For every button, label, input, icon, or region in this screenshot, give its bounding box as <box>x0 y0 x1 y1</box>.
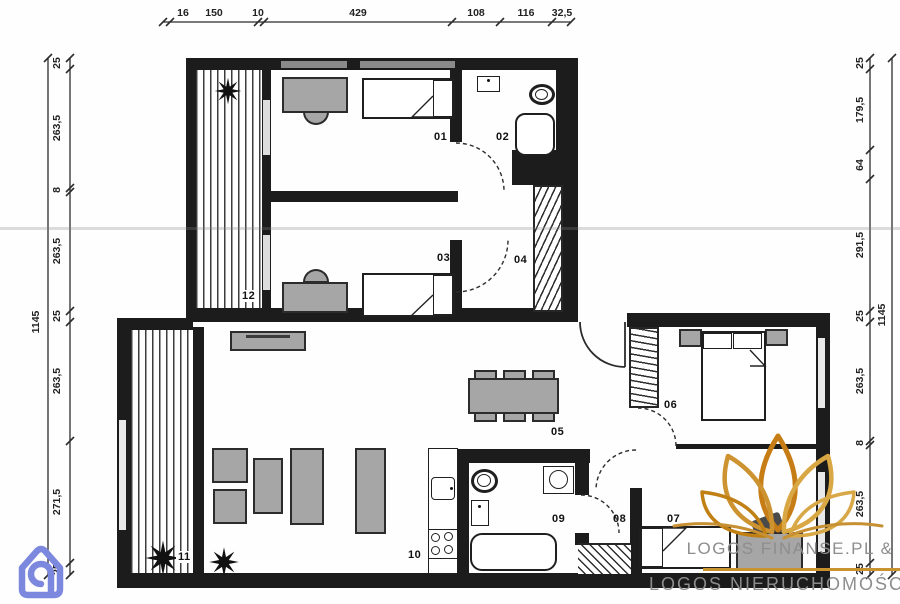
wall-room01-room03 <box>262 191 458 202</box>
dim-left-total: 1145 <box>30 300 42 344</box>
armchair-b <box>213 489 247 524</box>
shower-room02 <box>515 113 555 156</box>
dining-chair-5 <box>503 412 526 422</box>
floor-plan-page: 01 02 03 04 05 06 07 08 09 10 11 12 16 1… <box>0 0 900 604</box>
dim-right-7: 263,5 <box>854 482 866 526</box>
dim-right-4: 25 <box>854 294 866 338</box>
wall-hall04-right <box>562 185 578 312</box>
sofa <box>290 448 324 525</box>
sideboard <box>355 448 386 534</box>
dim-left-4: 25 <box>51 294 63 338</box>
room-label-09: 09 <box>552 513 565 525</box>
balcony-11-floor <box>131 330 193 573</box>
toilet-room02-bowl <box>535 89 548 100</box>
bathtub <box>470 533 557 571</box>
window-room01b <box>360 61 455 68</box>
kitchen-sink-tap <box>450 487 453 490</box>
dim-top-325: 32,5 <box>540 7 584 19</box>
nightstand-right <box>765 329 788 346</box>
room-label-07: 07 <box>667 513 680 525</box>
dim-left-2: 8 <box>51 168 63 212</box>
pillow-room06-b <box>733 333 762 349</box>
chair-room03 <box>303 269 329 283</box>
burner-4 <box>444 545 453 554</box>
dim-right-total: 1145 <box>876 293 888 337</box>
logo-underline <box>703 568 900 571</box>
room-label-06: 06 <box>664 399 677 411</box>
window-room01 <box>281 61 347 68</box>
tv-sideboard <box>230 331 306 351</box>
room-label-08: 08 <box>613 513 626 525</box>
room-label-04: 04 <box>514 254 527 266</box>
dim-right-1: 179,5 <box>854 88 866 132</box>
wall-bath-right-up <box>575 449 589 495</box>
room-label-03: 03 <box>437 252 450 264</box>
wall-room02-right <box>556 58 578 154</box>
dining-table <box>468 378 559 414</box>
sink-room09 <box>471 500 489 526</box>
dining-chair-2 <box>503 370 526 380</box>
window-room06 <box>818 338 825 408</box>
dim-left-5: 263,5 <box>51 359 63 403</box>
dim-left-6: 271,5 <box>51 480 63 524</box>
wall-upper-left <box>186 58 196 310</box>
sink-room09-tap <box>478 505 481 508</box>
dim-top-429: 429 <box>336 7 380 19</box>
dining-chair-1 <box>474 370 497 380</box>
burner-2 <box>444 532 453 541</box>
dim-left-7: 25 <box>51 547 63 591</box>
scan-artifact-line <box>0 227 900 230</box>
wall-room06-room07 <box>676 444 816 449</box>
tv-set <box>246 335 290 338</box>
armchair-a <box>212 448 248 483</box>
burner-3 <box>431 546 440 555</box>
coffee-table <box>253 458 283 514</box>
window-balcony11 <box>119 420 126 530</box>
washing-machine-drum <box>549 470 568 489</box>
pillow-room01 <box>433 80 453 117</box>
sink-room02-tap <box>487 79 490 82</box>
room-label-02: 02 <box>496 131 509 143</box>
dim-right-2: 64 <box>854 143 866 187</box>
room-label-12: 12 <box>240 290 257 302</box>
balcony-door-room01 <box>263 100 270 155</box>
dining-chair-6 <box>532 412 555 422</box>
dim-right-6: 8 <box>854 421 866 465</box>
wall-room06-top <box>627 313 816 327</box>
dim-right-0: 25 <box>854 41 866 85</box>
dining-chair-3 <box>532 370 555 380</box>
dim-top-108: 108 <box>454 7 498 19</box>
balcony-door-room03 <box>263 235 270 290</box>
desk-room03 <box>282 282 348 313</box>
pillow-room06-a <box>703 333 732 349</box>
logo-text-line1: LOGOS FINANSE.PL & <box>660 539 900 559</box>
room-label-11: 11 <box>176 551 193 563</box>
wardrobe-hall04 <box>533 185 563 312</box>
wall-balcony11-living <box>193 327 204 573</box>
room-label-01: 01 <box>434 131 447 143</box>
balcony-12-floor <box>196 70 262 308</box>
dim-left-0: 25 <box>51 41 63 85</box>
desk-room01 <box>282 77 348 113</box>
dim-right-5: 263,5 <box>854 359 866 403</box>
logo-text-line2: LOGOS NIERUCHOMOŚCI <box>645 574 900 595</box>
dim-right-3: 291,5 <box>854 223 866 267</box>
hall08-floor-hatch <box>578 543 631 574</box>
dim-top-150: 150 <box>192 7 236 19</box>
toilet-room09-bowl <box>477 474 491 487</box>
room-label-10: 10 <box>408 549 421 561</box>
room-label-05: 05 <box>551 426 564 438</box>
burner-1 <box>431 533 440 542</box>
dim-top-10: 10 <box>236 7 280 19</box>
dim-left-3: 263,5 <box>51 229 63 273</box>
wardrobe-room06 <box>629 327 659 408</box>
pillow-room03 <box>433 275 453 315</box>
chair-room01 <box>303 111 329 125</box>
nightstand-left <box>679 329 702 347</box>
dining-chair-4 <box>474 412 497 422</box>
dim-left-1: 263,5 <box>51 106 63 150</box>
